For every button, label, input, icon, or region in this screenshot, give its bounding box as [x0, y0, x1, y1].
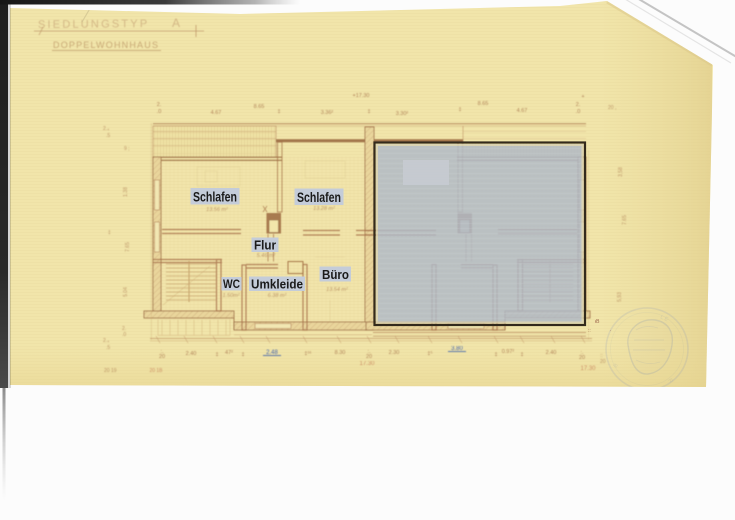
svg-text:3.30²: 3.30² — [396, 111, 409, 117]
svg-text:A: A — [172, 16, 182, 30]
svg-text:.5: .5 — [106, 133, 110, 139]
svg-text:‡: ‡ — [494, 352, 497, 358]
svg-text:4.67: 4.67 — [517, 108, 528, 114]
svg-text:3,58: 3,58 — [618, 167, 624, 177]
svg-text:Schlafen: Schlafen — [193, 189, 237, 205]
svg-text:2.30: 2.30 — [389, 350, 400, 356]
svg-text:0.97²: 0.97² — [502, 349, 515, 355]
svg-text:‡¹⁶: ‡¹⁶ — [304, 350, 311, 357]
svg-text:7.65: 7.65 — [125, 242, 131, 252]
svg-text:5.46 m²: 5.46 m² — [257, 253, 276, 259]
svg-text:9 ;: 9 ; — [124, 146, 130, 152]
svg-text:2.: 2. — [576, 102, 581, 108]
svg-text:4.67: 4.67 — [211, 110, 222, 116]
svg-text:.: . — [610, 327, 611, 333]
svg-text:20: 20 — [366, 354, 372, 360]
svg-text:13.54 m²: 13.54 m² — [326, 287, 348, 293]
svg-text:17.30: 17.30 — [359, 361, 375, 367]
svg-text:20: 20 — [579, 355, 585, 361]
svg-text:.0: .0 — [576, 109, 581, 115]
svg-text:‡: ‡ — [108, 230, 111, 236]
svg-text:‡: ‡ — [458, 107, 461, 113]
svg-text:6.38 m²: 6.38 m² — [268, 293, 287, 299]
svg-text:Büro: Büro — [322, 267, 349, 282]
svg-text:2.₄: 2.₄ — [103, 126, 109, 132]
svg-text:+: + — [581, 94, 584, 100]
svg-text:ᵻB: ᵻB — [595, 319, 600, 325]
svg-text:DOPPELWOHNHAUS: DOPPELWOHNHAUS — [53, 40, 159, 50]
svg-text:2.40: 2.40 — [546, 350, 557, 356]
svg-text:17.30: 17.30 — [580, 366, 596, 372]
svg-text:8.65: 8.65 — [254, 104, 265, 110]
svg-text:SIEDLUNGSTYP: SIEDLUNGSTYP — [38, 18, 149, 31]
svg-text:WC: WC — [223, 277, 240, 291]
svg-text:13.56 m²: 13.56 m² — [206, 207, 228, 213]
svg-text:47²: 47² — [225, 350, 233, 356]
svg-text:2.40: 2.40 — [186, 351, 197, 357]
svg-text:.0: .0 — [122, 332, 126, 338]
svg-text:1.50m²: 1.50m² — [222, 293, 239, 299]
svg-text:20 ,: 20 , — [608, 105, 616, 111]
svg-text:2.₄: 2.₄ — [103, 338, 109, 344]
svg-text:1.38: 1.38 — [123, 187, 129, 197]
svg-text:5.04: 5.04 — [123, 287, 129, 297]
svg-text:‡: ‡ — [367, 109, 370, 115]
svg-text:‡⁵: ‡⁵ — [427, 350, 432, 357]
svg-text:Schlafen: Schlafen — [297, 189, 341, 205]
svg-text:.0: .0 — [157, 109, 162, 115]
svg-text:‡: ‡ — [215, 352, 218, 358]
svg-text:2.: 2. — [157, 102, 162, 108]
svg-text:5,93: 5,93 — [617, 292, 623, 302]
svg-text:‡: ‡ — [520, 352, 523, 358]
svg-text:20 1B: 20 1B — [149, 368, 163, 374]
svg-text:.5: .5 — [106, 345, 110, 351]
svg-text:::: :: — [588, 328, 591, 334]
svg-text:‡: ‡ — [241, 352, 244, 358]
svg-text:+17.30: +17.30 — [353, 93, 370, 99]
svg-text:20: 20 — [600, 359, 606, 365]
svg-text:‡: ‡ — [277, 109, 280, 115]
svg-text:8.65: 8.65 — [478, 101, 489, 107]
svg-text:8.30: 8.30 — [335, 350, 346, 356]
svg-text:3.36²: 3.36² — [321, 110, 334, 116]
svg-text:Umkleide: Umkleide — [251, 277, 303, 292]
svg-text:20 19: 20 19 — [104, 368, 117, 374]
svg-text:7.65: 7.65 — [622, 215, 628, 225]
svg-text:13.28 m²: 13.28 m² — [313, 206, 335, 212]
svg-text:20: 20 — [159, 354, 165, 360]
svg-text:Flur: Flur — [254, 238, 276, 253]
